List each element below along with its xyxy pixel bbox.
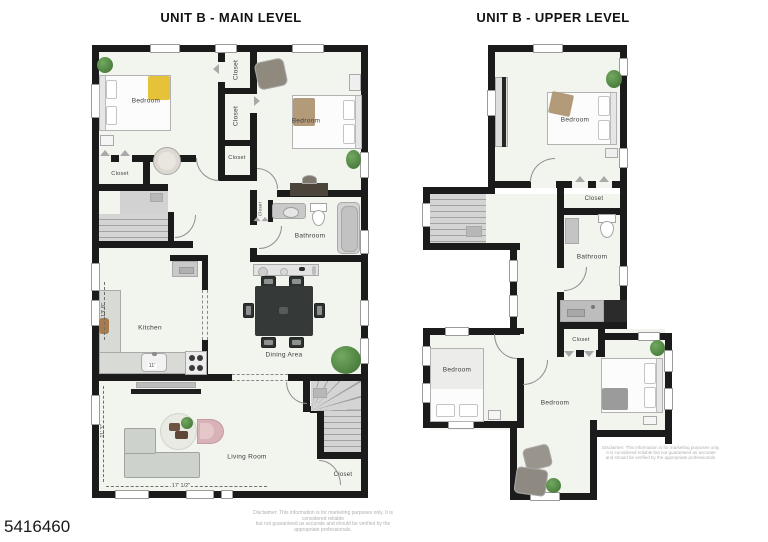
headboard xyxy=(656,359,662,412)
pillow xyxy=(436,404,455,417)
wall xyxy=(576,350,584,357)
wall xyxy=(556,181,572,188)
window xyxy=(509,260,518,282)
bathroom-vanity xyxy=(565,218,579,244)
washer-dial xyxy=(567,309,585,317)
plant xyxy=(606,70,622,88)
upper-level-title: UNIT B - UPPER LEVEL xyxy=(453,10,653,25)
wall xyxy=(595,430,672,437)
bifold-door-icon xyxy=(564,351,574,357)
window xyxy=(533,44,563,53)
bifold-door-icon xyxy=(599,176,609,182)
bifold-door-icon xyxy=(575,176,585,182)
window xyxy=(445,327,469,336)
wall xyxy=(557,350,564,357)
plant xyxy=(546,478,561,493)
wall xyxy=(588,181,596,188)
room-label-closet-hall-upper: Closet xyxy=(585,196,604,202)
disclaimer-text: Disclaimer: This information is for mark… xyxy=(602,445,720,460)
stair-utility-box xyxy=(466,226,482,237)
dresser xyxy=(605,148,618,158)
window xyxy=(619,266,628,286)
wall xyxy=(557,188,564,208)
pillow xyxy=(598,96,610,116)
room-label-bedroom-left-upper: Bedroom xyxy=(443,367,471,374)
throw-blanket xyxy=(602,388,628,410)
wall xyxy=(596,350,605,357)
room-label-bedroom-top: Bedroom xyxy=(561,117,589,124)
window xyxy=(664,388,673,410)
pillow xyxy=(644,387,656,408)
washer-knob xyxy=(591,305,595,309)
plant xyxy=(650,340,665,356)
wall xyxy=(612,181,627,188)
pillow xyxy=(459,404,478,417)
cabinet-dark xyxy=(604,300,627,322)
laundry-counter xyxy=(560,300,604,322)
pillow xyxy=(644,363,656,384)
window xyxy=(509,295,518,317)
room-label-bedroom-center: Bedroom xyxy=(541,400,569,407)
wall xyxy=(423,187,495,194)
window xyxy=(664,350,673,372)
wall xyxy=(598,333,672,340)
listing-photo-id: 5416460 xyxy=(4,517,70,537)
wall xyxy=(557,215,564,268)
wall xyxy=(557,208,627,215)
upper-level-plan: UNIT B - UPPER LEVEL xyxy=(0,0,368,542)
throw-blanket xyxy=(548,91,574,117)
bifold-door-icon xyxy=(584,351,594,357)
wall xyxy=(557,322,627,329)
wall xyxy=(517,328,524,334)
wall xyxy=(423,243,520,250)
wall xyxy=(590,420,597,500)
window xyxy=(619,148,628,168)
wall xyxy=(423,328,430,428)
bed xyxy=(430,348,484,422)
wall xyxy=(488,45,495,188)
pillow xyxy=(598,120,610,140)
headboard xyxy=(610,93,616,144)
nightstand xyxy=(488,410,501,420)
room-label-bathroom-upper: Bathroom xyxy=(577,254,608,261)
room-label-closet-mid-upper: Closet xyxy=(572,337,589,343)
bed xyxy=(601,358,663,413)
nightstand xyxy=(643,416,657,425)
wardrobe-door xyxy=(502,77,506,147)
armchair xyxy=(513,466,548,497)
floor-plan-page: UNIT B - MAIN LEVEL xyxy=(0,0,768,542)
